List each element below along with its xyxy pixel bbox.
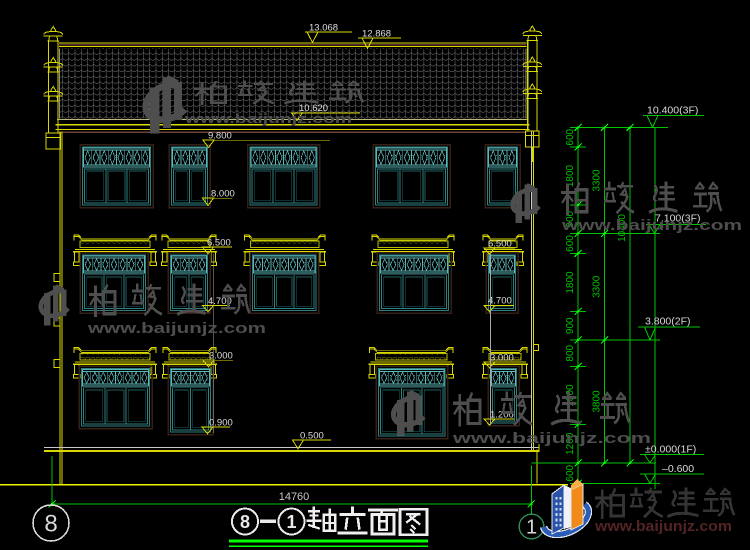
svg-text:www.baijunjz.com: www.baijunjz.com — [561, 217, 742, 234]
svg-text:8: 8 — [44, 511, 57, 538]
svg-text:10.400(3F): 10.400(3F) — [647, 105, 698, 117]
svg-text:www.baijunjz.com: www.baijunjz.com — [594, 518, 732, 535]
svg-text:900: 900 — [565, 317, 576, 334]
svg-text:–0.600: –0.600 — [662, 463, 694, 475]
svg-text:600: 600 — [565, 464, 576, 481]
svg-text:3.800(2F): 3.800(2F) — [645, 316, 691, 328]
svg-text:3800: 3800 — [592, 390, 603, 413]
svg-text:600: 600 — [565, 128, 576, 145]
svg-text:3300: 3300 — [592, 169, 603, 192]
svg-text:1: 1 — [526, 517, 537, 539]
svg-text:600: 600 — [565, 235, 576, 252]
svg-text:±0.000(1F): ±0.000(1F) — [645, 444, 696, 456]
svg-text:1800: 1800 — [565, 271, 576, 294]
svg-text:800: 800 — [565, 344, 576, 361]
svg-text:www.baijunjz.com: www.baijunjz.com — [87, 320, 266, 337]
svg-text:www.baijunjz.com: www.baijunjz.com — [184, 111, 352, 126]
svg-text:3300: 3300 — [592, 275, 603, 298]
svg-text:www.baijunjz.com: www.baijunjz.com — [451, 430, 651, 447]
svg-text:14760: 14760 — [279, 491, 310, 503]
svg-text:8: 8 — [240, 512, 250, 532]
svg-text:1: 1 — [286, 512, 296, 532]
